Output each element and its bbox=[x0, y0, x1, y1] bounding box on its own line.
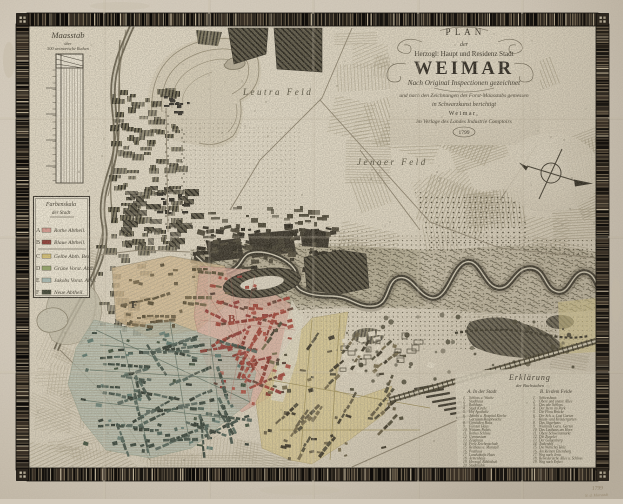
svg-text:1799: 1799 bbox=[592, 485, 604, 492]
